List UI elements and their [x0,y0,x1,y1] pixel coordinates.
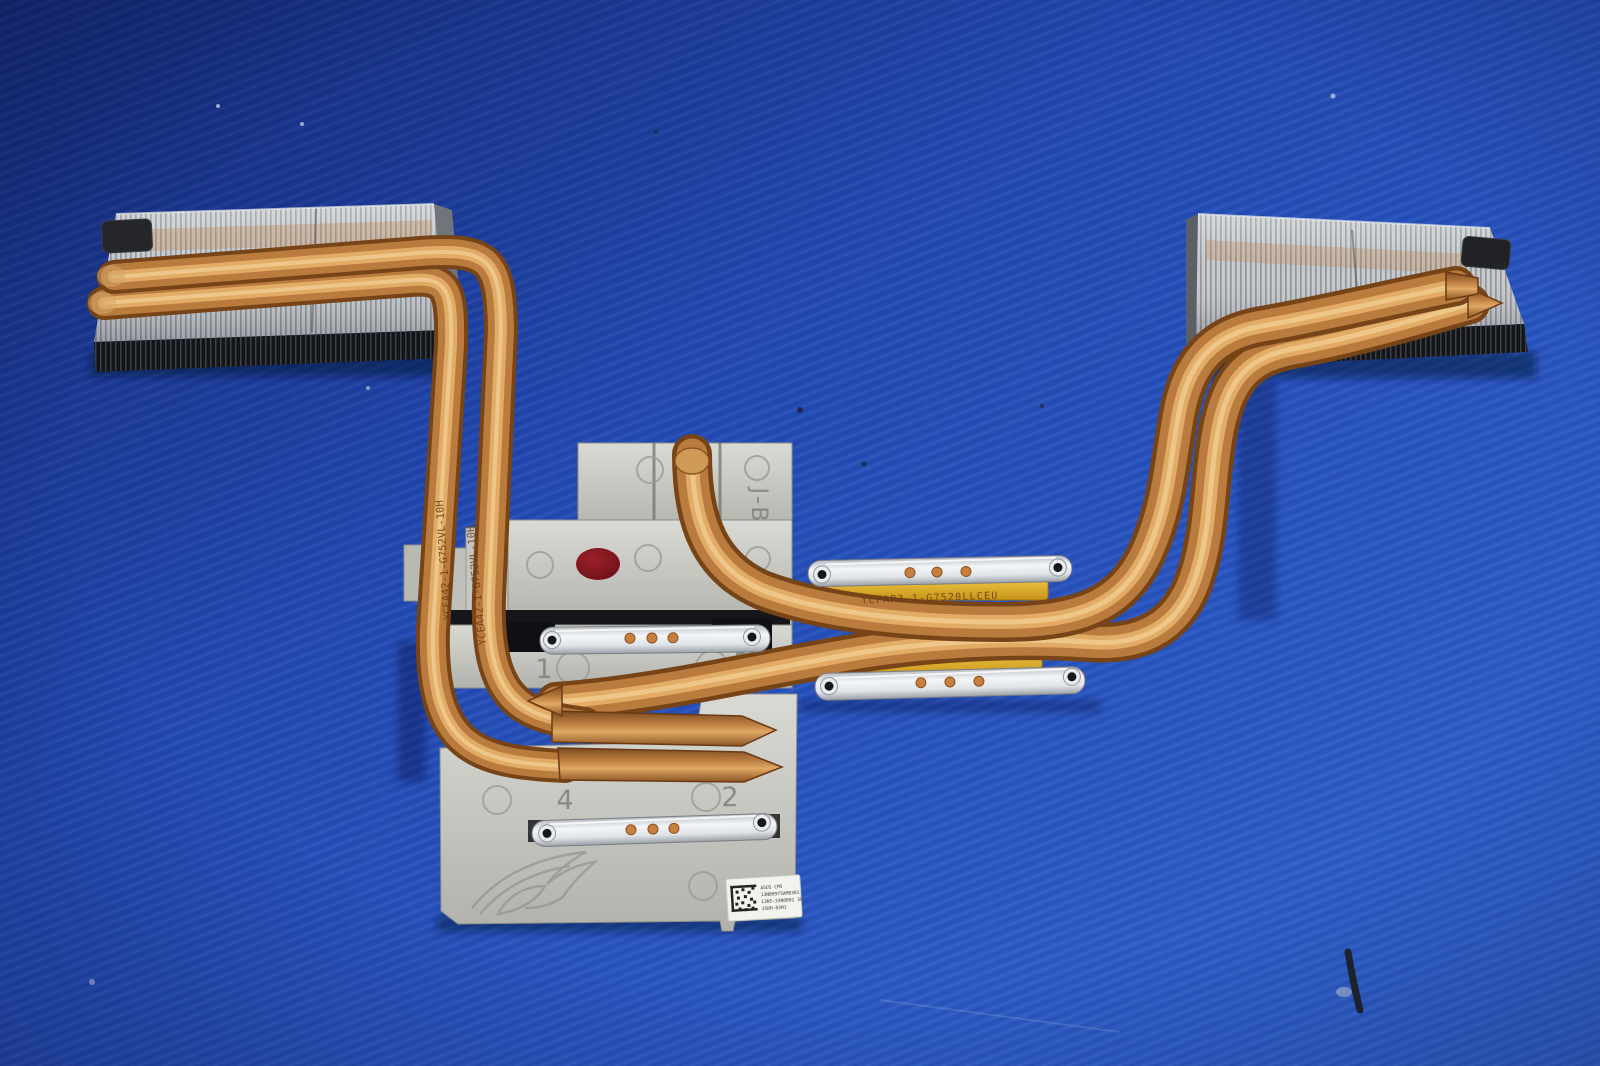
heatsink-photo-svg: J-B 1 3 4 2 ASUS CM5 13NB09Y5AM0301 13N5… [0,0,1600,1066]
vignette-overlay [0,0,1600,1066]
heatsink-photo: J-B 1 3 4 2 ASUS CM5 13NB09Y5AM0301 13N5… [0,0,1600,1066]
